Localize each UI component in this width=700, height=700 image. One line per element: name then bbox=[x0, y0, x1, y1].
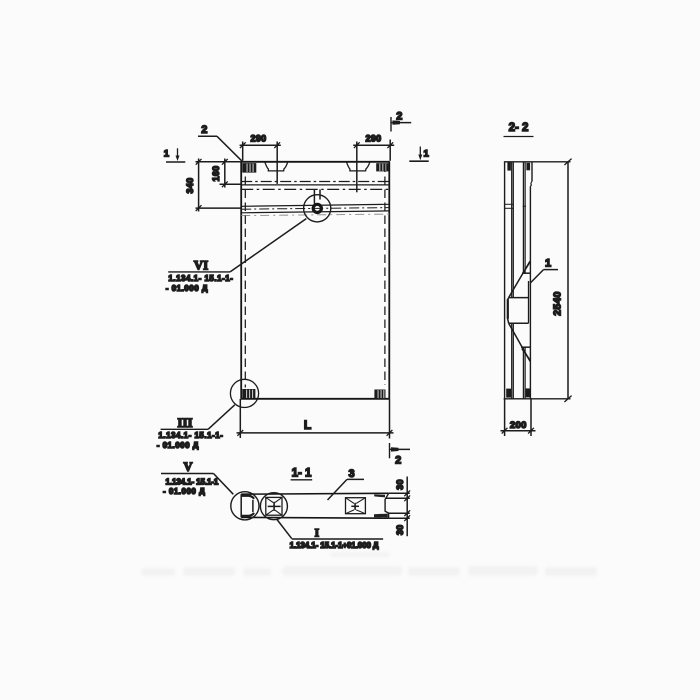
svg-text:- 01.000 Д: - 01.000 Д bbox=[166, 284, 208, 293]
svg-text:III: III bbox=[177, 415, 192, 430]
svg-text:2: 2 bbox=[201, 124, 207, 136]
svg-text:3: 3 bbox=[349, 468, 355, 480]
svg-text:2: 2 bbox=[395, 455, 401, 467]
svg-text:1: 1 bbox=[424, 149, 430, 160]
svg-text:I: I bbox=[315, 527, 320, 539]
svg-text:290: 290 bbox=[251, 133, 267, 143]
svg-text:2- 2: 2- 2 bbox=[509, 122, 529, 134]
svg-text:340: 340 bbox=[185, 178, 195, 194]
svg-text:- 01.000 Д: - 01.000 Д bbox=[163, 487, 205, 496]
svg-text:30: 30 bbox=[395, 524, 405, 535]
svg-text:200: 200 bbox=[510, 420, 527, 431]
svg-text:- 01.000 Д: - 01.000 Д bbox=[157, 441, 199, 450]
svg-text:1- 1: 1- 1 bbox=[292, 468, 312, 480]
svg-text:1.134.1- 15.1-1: 1.134.1- 15.1-1 bbox=[166, 477, 219, 486]
svg-text:2: 2 bbox=[396, 110, 402, 122]
svg-text:1.134.1- 15.1-1-: 1.134.1- 15.1-1- bbox=[158, 431, 223, 440]
svg-text:1: 1 bbox=[545, 258, 551, 270]
svg-text:30: 30 bbox=[395, 479, 405, 490]
svg-text:1.134.1- 15.1-1-: 1.134.1- 15.1-1- bbox=[168, 274, 233, 283]
svg-text:160: 160 bbox=[211, 166, 221, 182]
svg-text:290: 290 bbox=[366, 133, 382, 143]
svg-text:L: L bbox=[304, 418, 311, 432]
svg-text:V: V bbox=[183, 460, 192, 474]
svg-text:1.134.1- 15.1-1+01.000 Д: 1.134.1- 15.1-1+01.000 Д bbox=[290, 541, 379, 550]
svg-text:1: 1 bbox=[164, 149, 170, 160]
svg-text:VI: VI bbox=[194, 258, 208, 273]
svg-text:2540: 2540 bbox=[552, 291, 564, 316]
